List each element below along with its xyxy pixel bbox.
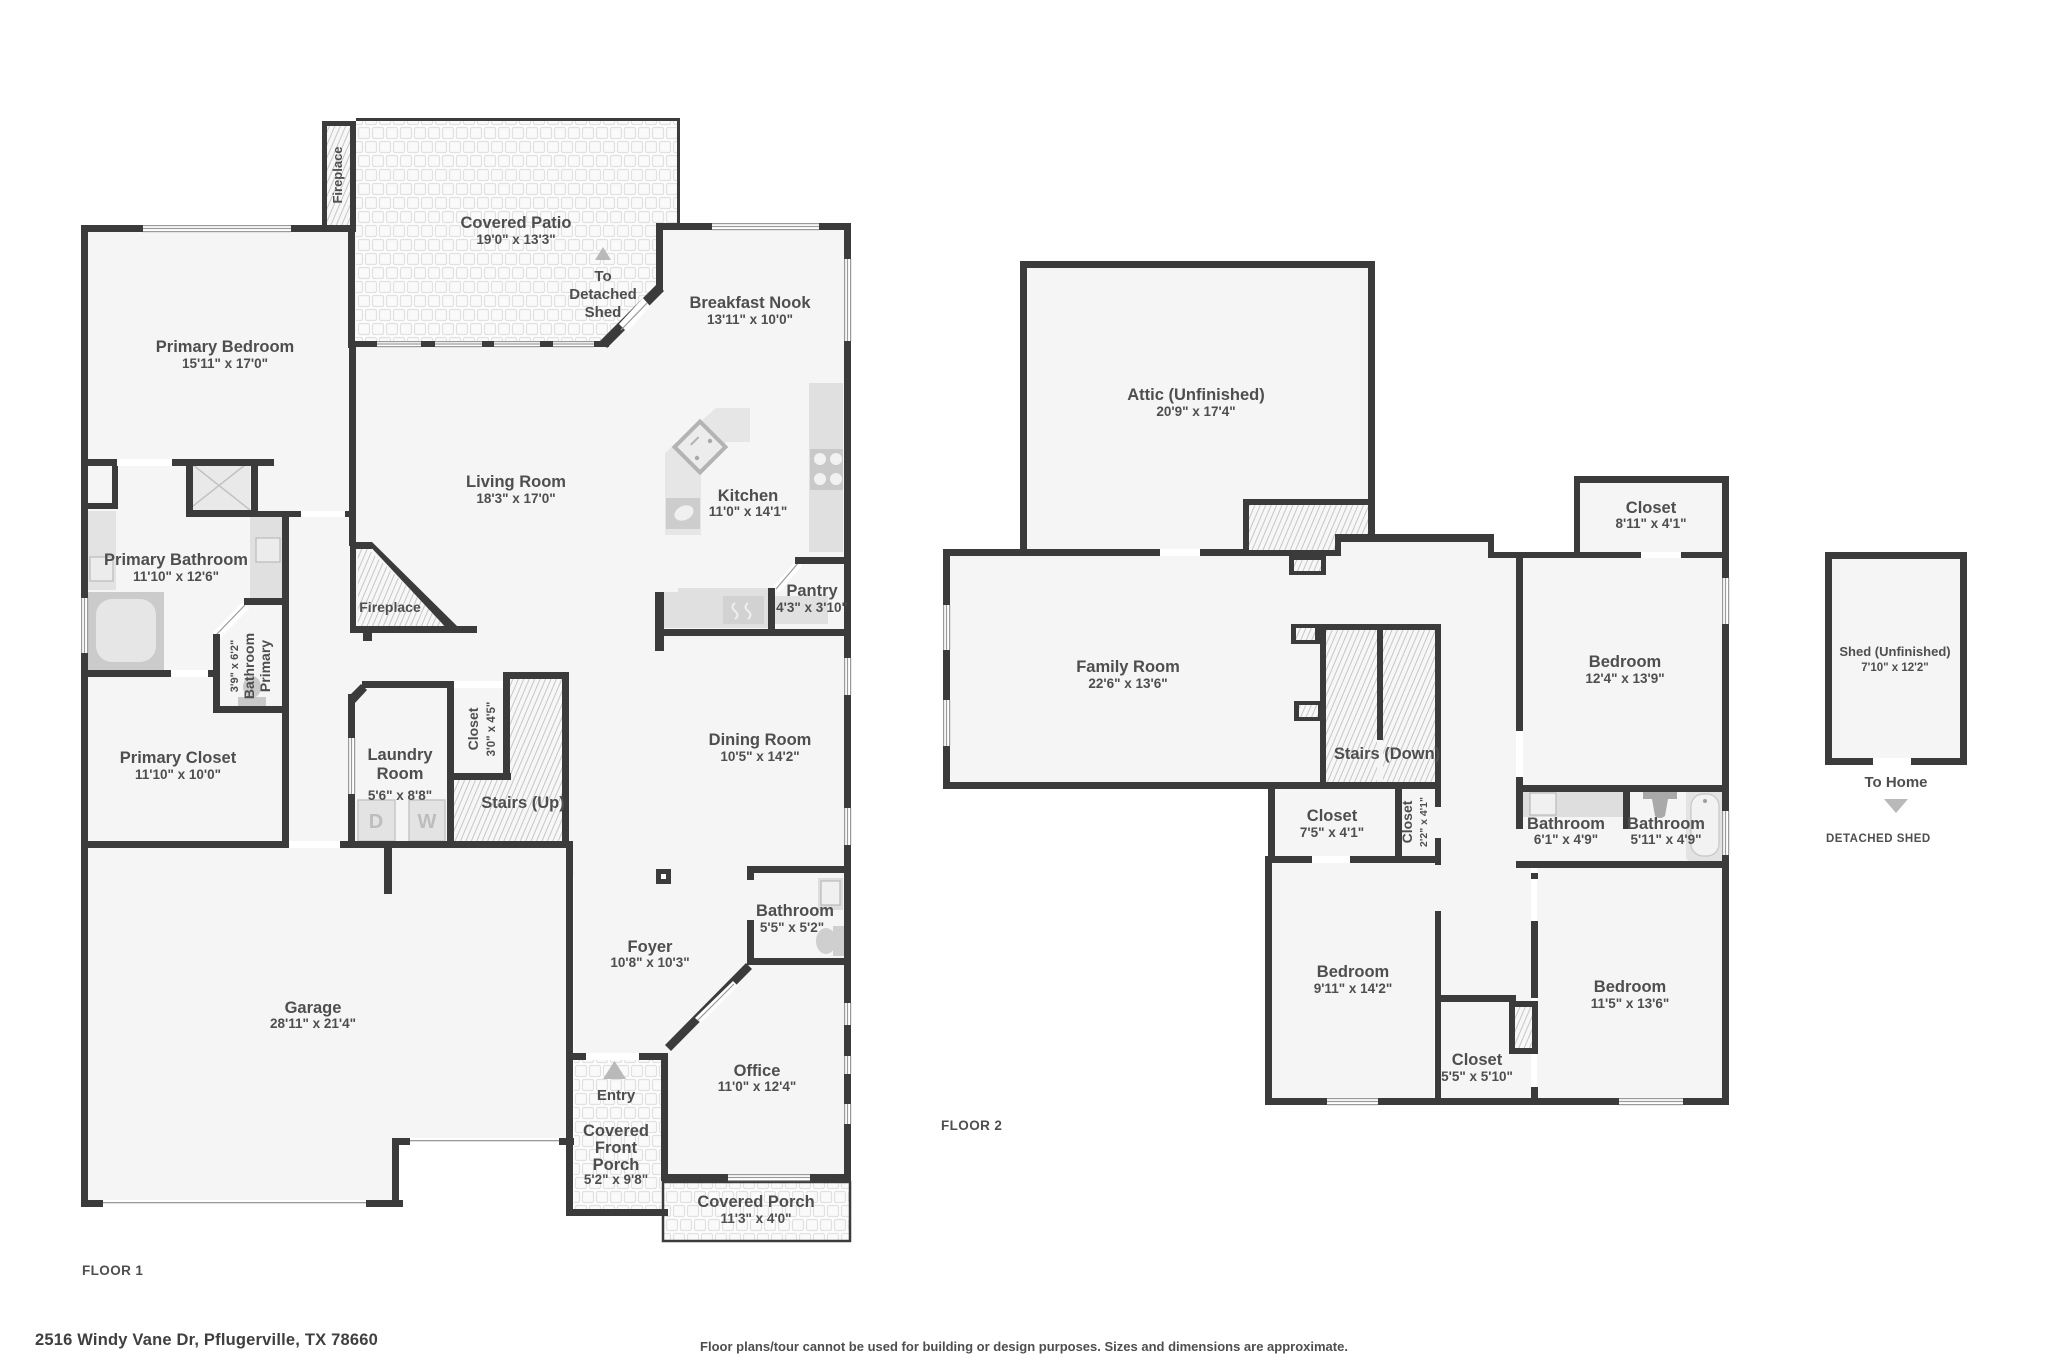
svg-text:Fireplace: Fireplace xyxy=(359,599,421,615)
svg-text:Primary Bathroom: Primary Bathroom xyxy=(104,551,248,569)
svg-text:Bathroom: Bathroom xyxy=(241,633,257,699)
svg-text:11'3" x 4'0": 11'3" x 4'0" xyxy=(720,1211,791,1226)
svg-text:13'11" x 10'0": 13'11" x 10'0" xyxy=(707,312,793,327)
svg-text:4'3" x 3'10": 4'3" x 3'10" xyxy=(776,600,848,615)
svg-text:DETACHED SHED: DETACHED SHED xyxy=(1826,833,1931,845)
svg-text:Foyer: Foyer xyxy=(628,938,674,956)
svg-text:Living Room: Living Room xyxy=(466,473,566,491)
svg-text:Bathroom: Bathroom xyxy=(756,902,834,920)
svg-text:Stairs (Down): Stairs (Down) xyxy=(1334,745,1440,763)
svg-text:22'6" x 13'6": 22'6" x 13'6" xyxy=(1088,676,1167,691)
svg-text:18'3" x 17'0": 18'3" x 17'0" xyxy=(476,491,555,506)
svg-text:Kitchen: Kitchen xyxy=(718,487,779,505)
svg-text:2516 Windy Vane Dr, Pflugervil: 2516 Windy Vane Dr, Pflugerville, TX 786… xyxy=(35,1331,378,1349)
svg-text:Closet: Closet xyxy=(1452,1051,1503,1069)
svg-text:11'10" x 10'0": 11'10" x 10'0" xyxy=(135,767,221,782)
svg-text:7'10" x 12'2": 7'10" x 12'2" xyxy=(1861,662,1929,674)
svg-text:Office: Office xyxy=(734,1062,781,1080)
svg-text:11'5" x 13'6": 11'5" x 13'6" xyxy=(1591,996,1670,1011)
svg-text:Bedroom: Bedroom xyxy=(1594,978,1666,996)
svg-text:3'9" x 6'2": 3'9" x 6'2" xyxy=(229,640,241,692)
svg-text:Shed: Shed xyxy=(585,304,622,321)
svg-text:11'0" x 14'1": 11'0" x 14'1" xyxy=(709,504,788,519)
svg-text:Family Room: Family Room xyxy=(1076,658,1180,676)
svg-text:Attic (Unfinished): Attic (Unfinished) xyxy=(1127,386,1265,404)
svg-text:Floor plans/tour cannot be use: Floor plans/tour cannot be used for buil… xyxy=(700,1339,1348,1354)
svg-text:Primary: Primary xyxy=(257,640,273,692)
svg-text:Bathroom: Bathroom xyxy=(1527,815,1605,833)
svg-text:10'8" x 10'3": 10'8" x 10'3" xyxy=(610,955,689,970)
svg-text:Bedroom: Bedroom xyxy=(1589,653,1661,671)
svg-text:Pantry: Pantry xyxy=(786,582,838,600)
svg-text:FLOOR 2: FLOOR 2 xyxy=(941,1118,1002,1133)
svg-text:Bedroom: Bedroom xyxy=(1317,963,1389,981)
svg-text:5'11" x 4'9": 5'11" x 4'9" xyxy=(1630,832,1701,847)
svg-text:Closet: Closet xyxy=(1626,499,1677,517)
svg-text:Detached: Detached xyxy=(569,286,637,303)
svg-text:Covered Porch: Covered Porch xyxy=(697,1193,814,1211)
svg-text:11'0" x 12'4": 11'0" x 12'4" xyxy=(718,1079,797,1094)
svg-text:10'5" x 14'2": 10'5" x 14'2" xyxy=(720,749,799,764)
svg-text:28'11" x 21'4": 28'11" x 21'4" xyxy=(270,1016,356,1031)
svg-text:8'11" x 4'1": 8'11" x 4'1" xyxy=(1615,516,1686,531)
svg-text:Fireplace: Fireplace xyxy=(330,146,345,203)
svg-text:To: To xyxy=(594,268,611,285)
svg-text:15'11" x 17'0": 15'11" x 17'0" xyxy=(182,356,268,371)
svg-text:Breakfast Nook: Breakfast Nook xyxy=(689,294,811,312)
svg-text:3'0" x 4'5": 3'0" x 4'5" xyxy=(486,702,498,757)
svg-text:Dining Room: Dining Room xyxy=(709,731,812,749)
svg-text:19'0" x 13'3": 19'0" x 13'3" xyxy=(476,232,555,247)
svg-text:7'5" x 4'1": 7'5" x 4'1" xyxy=(1300,825,1364,840)
svg-text:Closet: Closet xyxy=(1307,807,1358,825)
svg-text:2'2" x 4'1": 2'2" x 4'1" xyxy=(1418,797,1430,847)
svg-text:Bathroom: Bathroom xyxy=(1627,815,1705,833)
svg-text:Closet: Closet xyxy=(1399,800,1415,843)
svg-text:Primary Bedroom: Primary Bedroom xyxy=(156,338,294,356)
svg-text:9'11" x 14'2": 9'11" x 14'2" xyxy=(1314,981,1393,996)
svg-text:Front: Front xyxy=(595,1139,638,1157)
svg-text:12'4" x 13'9": 12'4" x 13'9" xyxy=(1585,671,1664,686)
svg-text:5'2" x 9'8": 5'2" x 9'8" xyxy=(584,1172,648,1187)
svg-text:6'1" x 4'9": 6'1" x 4'9" xyxy=(1534,832,1598,847)
svg-text:W: W xyxy=(418,811,437,833)
svg-text:Laundry: Laundry xyxy=(367,746,433,764)
svg-text:Room: Room xyxy=(377,765,424,783)
svg-text:Shed (Unfinished): Shed (Unfinished) xyxy=(1839,644,1950,659)
svg-text:Stairs (Up): Stairs (Up) xyxy=(481,794,564,812)
svg-text:To Home: To Home xyxy=(1864,774,1927,791)
svg-text:Covered: Covered xyxy=(583,1122,649,1140)
svg-text:FLOOR 1: FLOOR 1 xyxy=(82,1263,143,1278)
svg-text:5'6" x 8'8": 5'6" x 8'8" xyxy=(368,788,432,803)
svg-text:5'5" x 5'10": 5'5" x 5'10" xyxy=(1441,1069,1513,1084)
svg-text:Closet: Closet xyxy=(465,707,481,750)
svg-text:Entry: Entry xyxy=(597,1087,636,1104)
svg-text:Garage: Garage xyxy=(285,999,342,1017)
svg-text:11'10" x 12'6": 11'10" x 12'6" xyxy=(133,569,219,584)
svg-text:5'5" x 5'2": 5'5" x 5'2" xyxy=(760,920,824,935)
svg-text:D: D xyxy=(369,811,383,833)
svg-text:Primary Closet: Primary Closet xyxy=(120,749,237,767)
svg-text:20'9" x 17'4": 20'9" x 17'4" xyxy=(1156,404,1235,419)
svg-text:Covered Patio: Covered Patio xyxy=(461,214,572,232)
